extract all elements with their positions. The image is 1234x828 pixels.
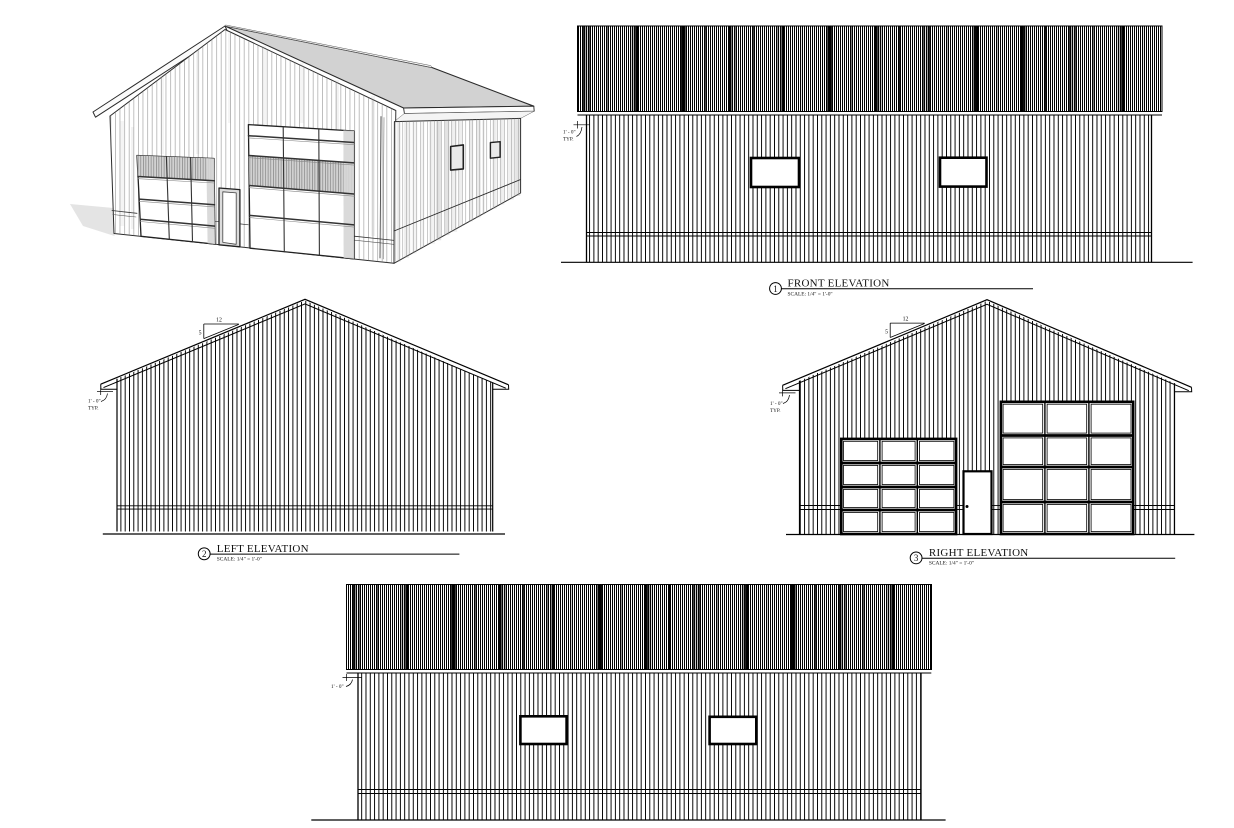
svg-text:3: 3 <box>914 553 919 563</box>
svg-text:12: 12 <box>903 317 909 323</box>
svg-text:TYP.: TYP. <box>88 406 99 412</box>
svg-text:FRONT ELEVATION: FRONT ELEVATION <box>788 278 890 290</box>
svg-text:1: 1 <box>773 284 778 294</box>
svg-text:RIGHT ELEVATION: RIGHT ELEVATION <box>929 547 1029 559</box>
svg-text:TYP.: TYP. <box>563 137 574 143</box>
svg-text:SCALE: 1/4" = 1'-0": SCALE: 1/4" = 1'-0" <box>217 557 262 563</box>
svg-text:LEFT ELEVATION: LEFT ELEVATION <box>217 543 309 555</box>
svg-text:2: 2 <box>202 549 207 559</box>
svg-text:1' - 0": 1' - 0" <box>770 401 783 407</box>
svg-text:1' - 0": 1' - 0" <box>331 684 344 690</box>
svg-text:5: 5 <box>199 331 202 337</box>
svg-text:1' - 0": 1' - 0" <box>563 130 576 136</box>
svg-text:SCALE: 1/4" = 1'-0": SCALE: 1/4" = 1'-0" <box>788 291 833 297</box>
svg-text:TYP.: TYP. <box>770 408 781 414</box>
svg-text:SCALE: 1/4" = 1'-0": SCALE: 1/4" = 1'-0" <box>929 561 974 567</box>
svg-text:5: 5 <box>885 330 888 336</box>
svg-text:12: 12 <box>216 318 222 324</box>
svg-text:1' - 0": 1' - 0" <box>88 399 101 405</box>
